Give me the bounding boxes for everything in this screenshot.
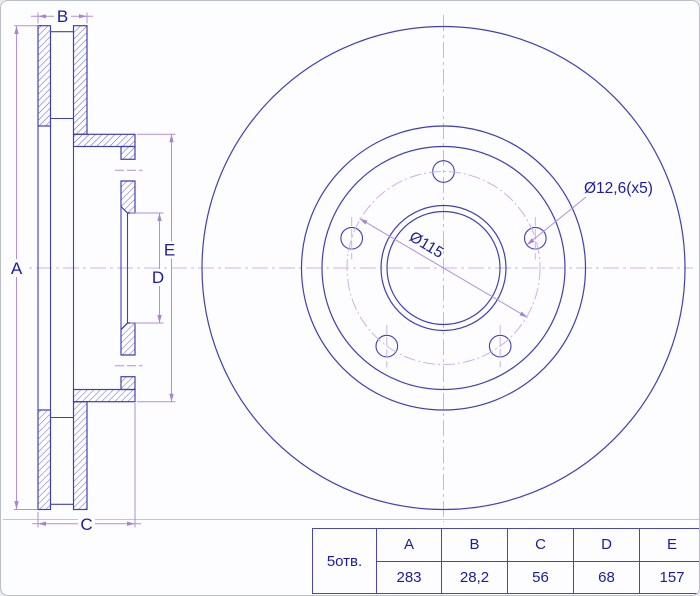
outboard-plate-top: [38, 26, 51, 126]
hat-wall-top: [74, 134, 136, 146]
table-value-E: 157: [640, 561, 700, 594]
bolt-circle-dia-label: Ø115: [406, 228, 446, 262]
technical-drawing-sheet: A B C D E Ø115 Ø12,6(x5) 5отв. A B C D E…: [0, 0, 700, 596]
dim-label-A: A: [11, 259, 23, 278]
section-view: [38, 26, 135, 510]
centerlines: [9, 15, 693, 522]
table-header-E: E: [640, 529, 700, 562]
hat-wall-bottom: [74, 390, 136, 402]
table-value-B: 28,2: [442, 561, 508, 594]
flange-above-bolt-hole-bottom: [121, 323, 135, 355]
flange-below-bolt-hole-bottom: [121, 377, 135, 390]
dimension-spec-table: 5отв. A B C D E 283 28,2 56 68 157: [312, 528, 700, 594]
table-value-A: 283: [377, 561, 442, 594]
dim-label-D: D: [152, 268, 164, 287]
brake-disc-drawing: A B C D E Ø115 Ø12,6(x5): [1, 1, 700, 596]
flange-below-bolt-hole-top: [121, 181, 135, 213]
table-value-D: 68: [574, 561, 640, 594]
table-value-C: 56: [508, 561, 574, 594]
inboard-plate-bottom: [74, 402, 88, 510]
table-row-label: 5отв.: [313, 529, 377, 594]
inboard-plate-top: [74, 26, 88, 135]
bolt-hole-dia-label: Ø12,6(x5): [584, 180, 653, 197]
dimension-arrows: [14, 14, 534, 526]
table-header-B: B: [442, 529, 508, 562]
table-header-C: C: [508, 529, 574, 562]
dim-label-B: B: [57, 7, 68, 26]
table-header-D: D: [574, 529, 640, 562]
table-header-A: A: [377, 529, 442, 562]
dim-label-E: E: [164, 241, 175, 260]
flange-above-bolt-hole-top: [121, 147, 135, 160]
outboard-plate-bottom: [38, 410, 51, 510]
dim-label-C: C: [80, 515, 92, 534]
